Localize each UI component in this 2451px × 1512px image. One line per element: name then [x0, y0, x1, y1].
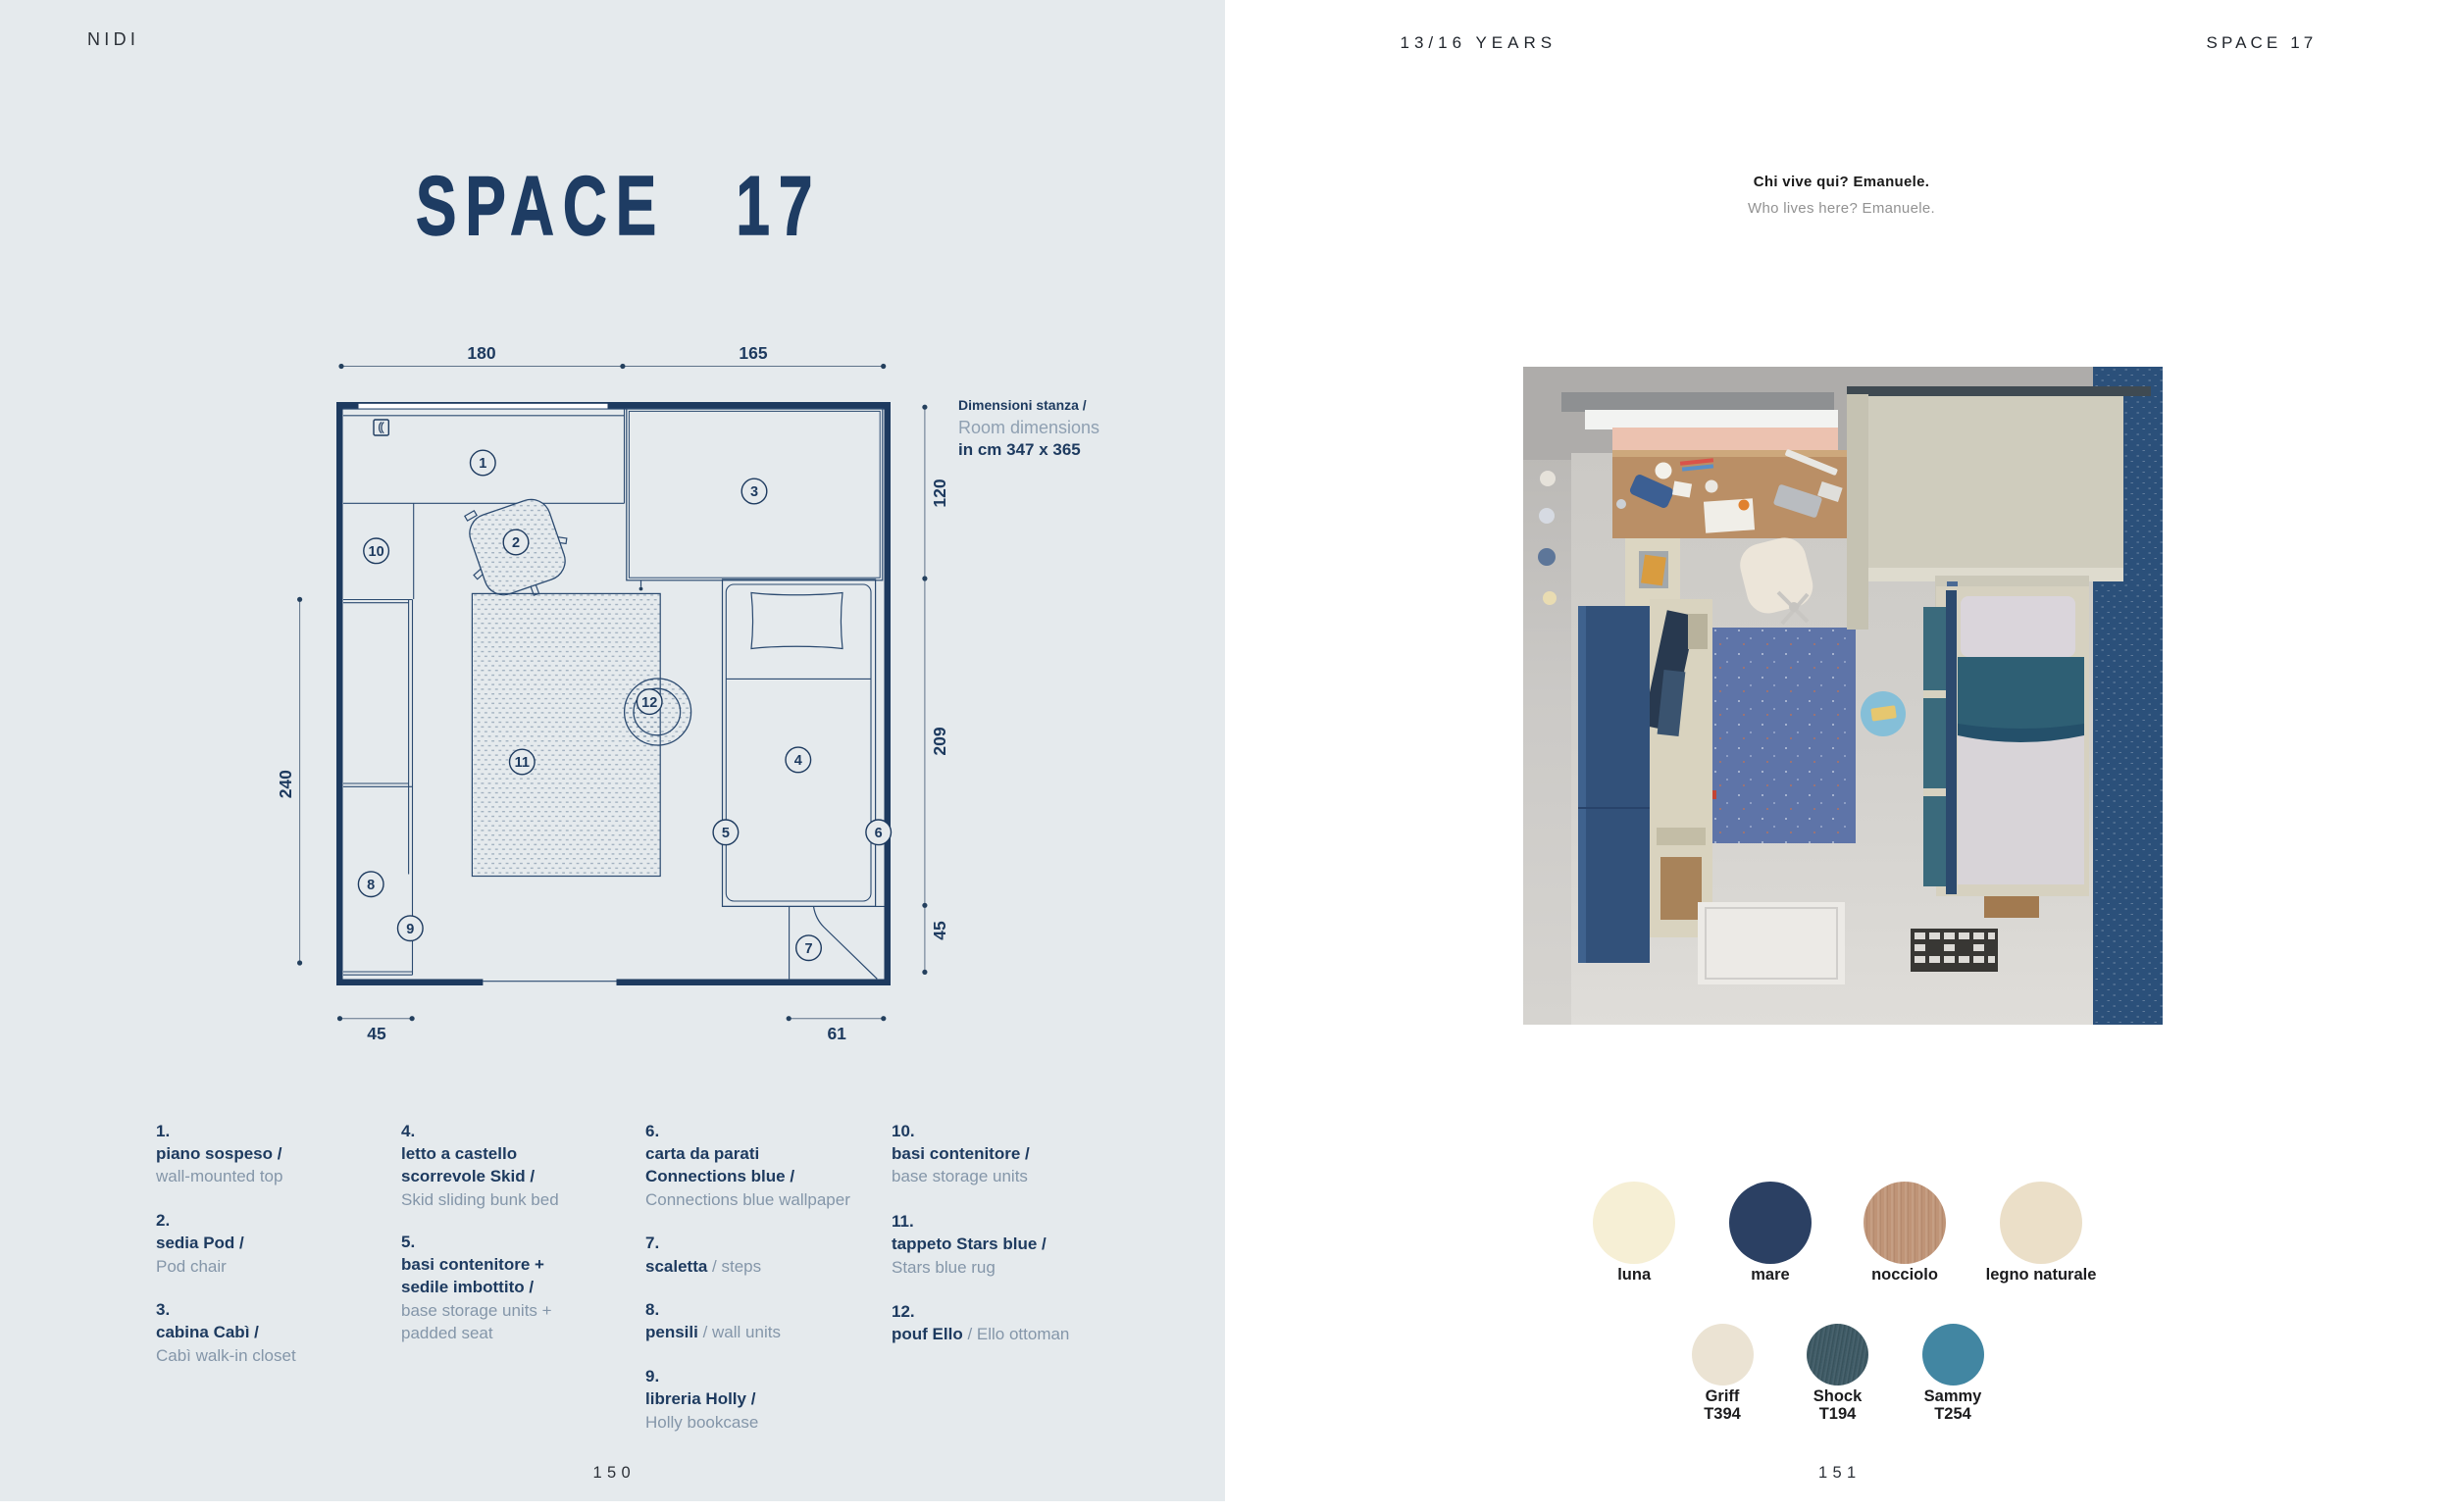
- svg-text:2: 2: [512, 535, 520, 551]
- svg-text:45: 45: [930, 921, 949, 940]
- svg-text:10: 10: [369, 544, 384, 560]
- svg-text:240: 240: [276, 770, 295, 798]
- svg-text:180: 180: [467, 343, 495, 363]
- svg-text:9: 9: [406, 922, 414, 937]
- svg-text:165: 165: [739, 343, 767, 363]
- svg-text:209: 209: [930, 727, 949, 755]
- svg-text:7: 7: [804, 941, 812, 957]
- svg-text:61: 61: [827, 1024, 846, 1043]
- svg-text:8: 8: [367, 878, 375, 893]
- svg-text:3: 3: [750, 484, 758, 500]
- svg-text:11: 11: [515, 755, 530, 771]
- svg-text:1: 1: [479, 456, 486, 472]
- svg-text:5: 5: [722, 826, 730, 841]
- svg-text:6: 6: [875, 826, 883, 841]
- svg-text:45: 45: [367, 1024, 386, 1043]
- svg-text:120: 120: [930, 479, 949, 507]
- svg-text:4: 4: [794, 753, 802, 769]
- svg-text:12: 12: [641, 695, 657, 711]
